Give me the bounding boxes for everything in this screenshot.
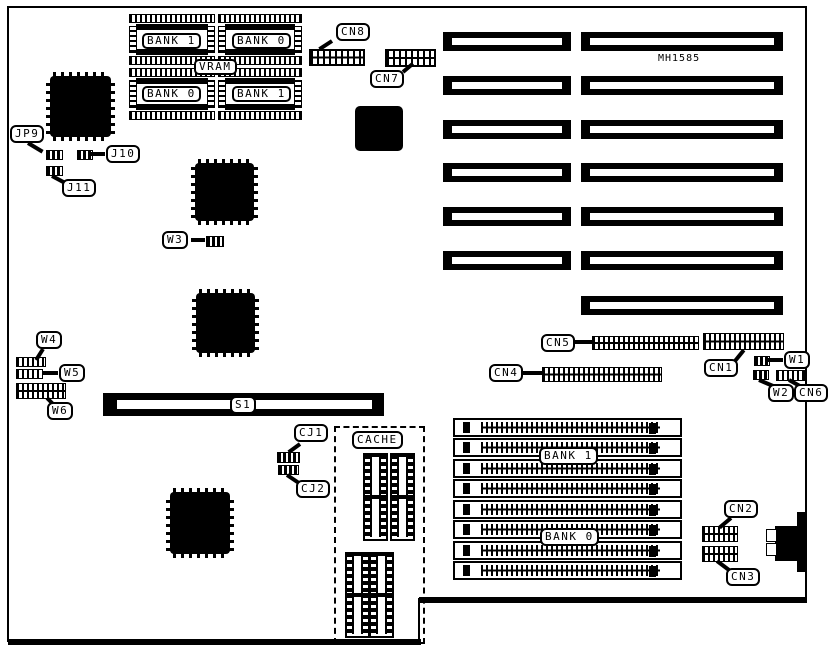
cn2-label: CN2 [724,500,758,518]
cache-label: CACHE [352,431,403,449]
w5-header [16,369,43,379]
w2-label: W2 [768,384,794,402]
expansion-slot [443,32,571,51]
cn7-label: CN7 [370,70,404,88]
expansion-slot [581,76,783,95]
cn5-label: CN5 [541,334,575,352]
w6-connector [16,383,66,399]
vram-bank0-bottom-label: BANK 0 [142,86,201,102]
vram-label: VRAM [194,59,237,75]
cache-socket [363,453,388,499]
cn8-connector [309,49,365,66]
cn3-connector [702,546,738,562]
cn6-label: CN6 [794,384,828,402]
keyboard-connector-notch [766,529,777,542]
w5-label: W5 [59,364,85,382]
qfp-chip [191,159,258,225]
cj1-jumper [277,452,300,463]
qfp-chip [166,488,234,558]
simm-socket [453,418,682,437]
j11-label: J11 [62,179,96,197]
expansion-slot [443,120,571,139]
cn5-connector [592,336,699,350]
keyboard-connector-notch [766,543,777,556]
j10-callout-tail [91,152,105,156]
cj2-label: CJ2 [296,480,330,498]
expansion-slot [581,296,783,315]
qfp-chip [192,289,259,357]
expansion-slot [581,32,783,51]
w1-label: W1 [784,351,810,369]
jp9-jumper [46,150,63,160]
vram-bank1-top-label: BANK 1 [142,33,201,49]
w3-label: W3 [162,231,188,249]
w1-callout-tail [768,358,783,362]
cache-socket [369,593,394,638]
s1-label: S1 [230,396,256,414]
w4-label: W4 [36,331,62,349]
jp9-label: JP9 [10,125,44,143]
expansion-slot [443,163,571,182]
vram-bank0-top-label: BANK 0 [232,33,291,49]
expansion-slot [443,76,571,95]
cn1-connector [703,333,784,350]
simm-socket [453,500,682,519]
cn4-connector [542,367,662,382]
qfp-chip [46,72,115,141]
cache-socket [345,552,370,597]
w6-label: W6 [47,402,73,420]
cn1-label: CN1 [704,359,738,377]
w4-header [16,357,46,367]
keyboard-connector-body [797,512,806,572]
vram-bank1-bottom-label: BANK 1 [232,86,291,102]
expansion-slot [581,207,783,226]
cache-socket [369,552,394,597]
cn4-callout-tail [523,371,542,375]
memory-bank0-label: BANK 0 [540,528,599,546]
expansion-slot [581,251,783,270]
motherboard-diagram: MH1585 BANK 1 BANK 0 VR [0,0,838,654]
chip [355,106,403,151]
cn8-label: CN8 [336,23,370,41]
cn5-callout-tail [575,340,592,344]
w3-jumper [206,236,224,247]
cache-socket [345,593,370,638]
cache-socket [390,453,415,499]
simm-socket [453,479,682,498]
j10-label: J10 [106,145,140,163]
model-label: MH1585 [658,53,700,64]
cn3-label: CN3 [726,568,760,586]
w5-callout-tail [42,371,58,375]
simm-socket [453,561,682,580]
expansion-slot [581,120,783,139]
w3-callout-tail [191,238,205,242]
expansion-slot [443,251,571,270]
cj1-label: CJ1 [294,424,328,442]
cache-socket [390,495,415,541]
memory-bank1-label: BANK 1 [539,447,598,465]
expansion-slot [581,163,783,182]
cache-socket [363,495,388,541]
cn4-label: CN4 [489,364,523,382]
expansion-slot [443,207,571,226]
